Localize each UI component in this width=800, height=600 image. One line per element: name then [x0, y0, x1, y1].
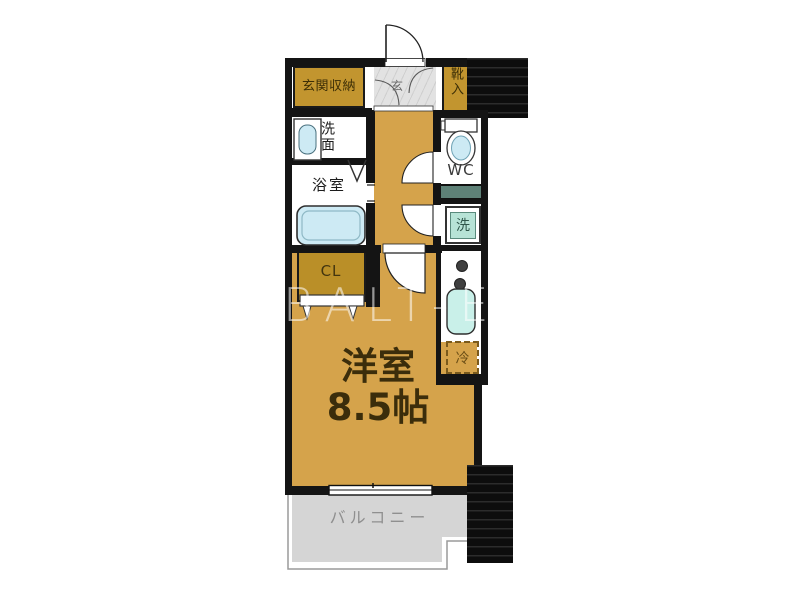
watermark-text: BALT-E	[283, 278, 499, 332]
entrance-floor	[374, 62, 436, 112]
wall	[285, 108, 372, 117]
bathroom-label: 浴室	[299, 178, 359, 193]
washbasin-icon	[294, 119, 321, 160]
entrance-storage-label: 玄関収納	[294, 80, 364, 93]
shoe-cabinet-label: 靴入	[449, 67, 462, 97]
western-room-size: 8.5帖	[298, 387, 458, 428]
entrance-door-icon	[385, 25, 425, 67]
wall	[437, 199, 484, 204]
wall	[437, 245, 484, 251]
entrance-label: 玄	[391, 80, 403, 92]
western-room-label: 洋室 8.5帖	[298, 346, 458, 429]
wall	[432, 486, 470, 495]
toilet-icon	[441, 119, 477, 165]
adjacent-block-bottom	[467, 465, 513, 563]
adjacent-block-top	[467, 58, 528, 118]
floorplan-page: { "floorplan": { "watermark": "BALT-E", …	[0, 0, 800, 600]
wall	[285, 158, 372, 165]
closet-label: CL	[306, 264, 356, 279]
hallway-floor	[374, 108, 433, 252]
wc-label: WC	[443, 163, 479, 178]
balcony-label: バルコニー	[292, 510, 467, 526]
wall	[285, 58, 292, 495]
wall	[437, 110, 484, 118]
balcony-floor	[292, 495, 467, 562]
laundry-pan: 洗	[445, 206, 481, 244]
wc-counter	[437, 184, 481, 200]
laundry-label: 洗	[456, 215, 470, 235]
western-room-name: 洋室	[298, 346, 458, 387]
washbasin-label: 洗面	[320, 121, 334, 153]
washing-machine-icon: 洗	[450, 212, 476, 239]
wall	[433, 110, 441, 152]
wall	[285, 486, 329, 495]
bathtub-icon	[297, 206, 365, 245]
wall	[481, 110, 488, 385]
wall	[426, 58, 470, 67]
wall	[285, 58, 385, 67]
wall	[366, 110, 375, 183]
